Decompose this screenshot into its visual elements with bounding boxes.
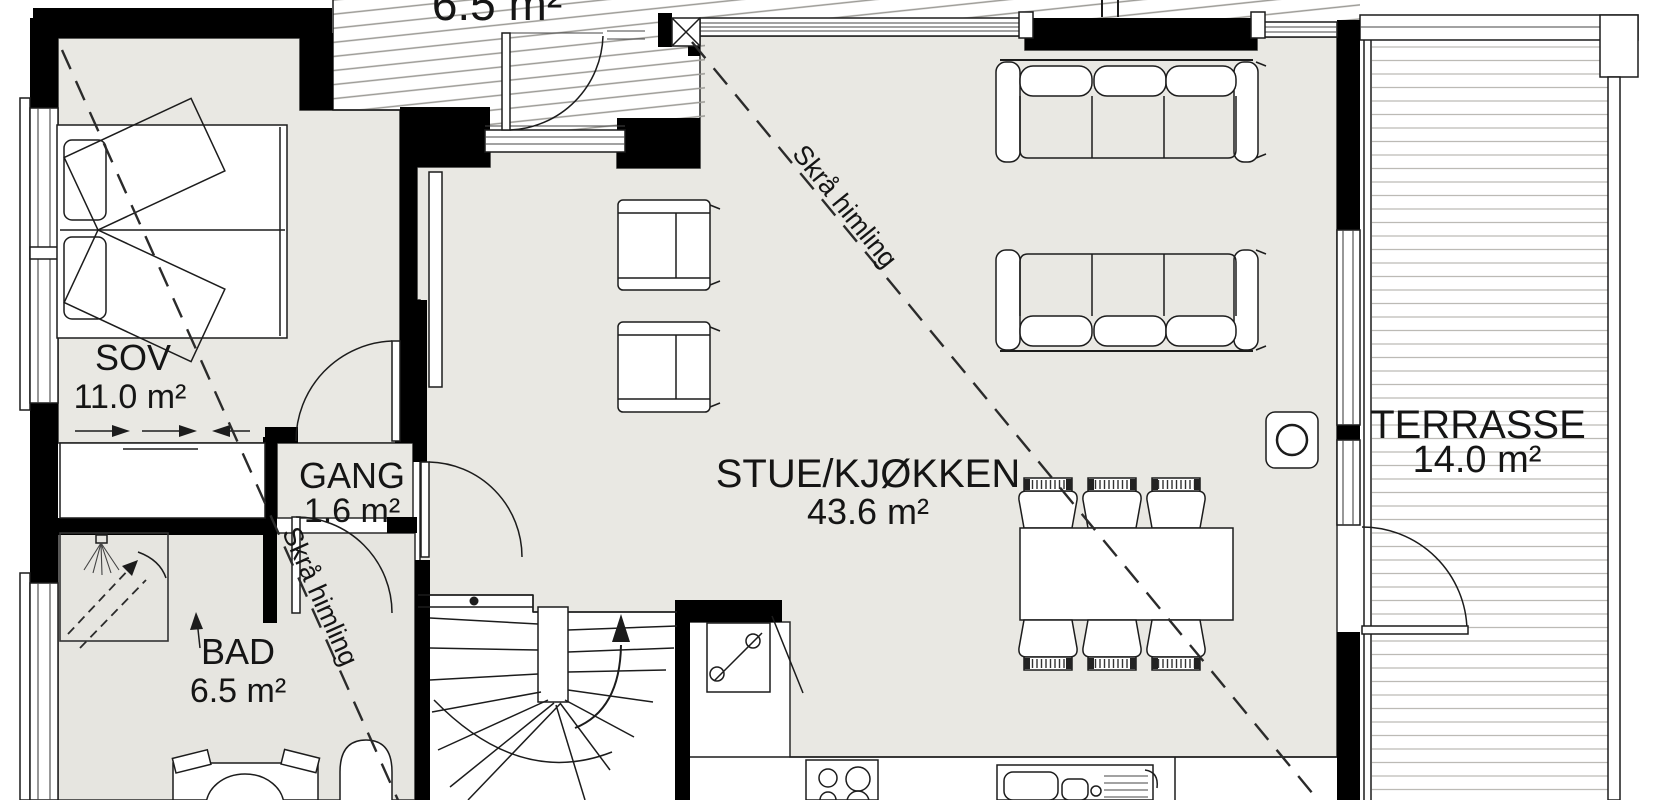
winder-staircase-icon — [418, 595, 677, 800]
room-label-gang: GANG — [299, 455, 405, 496]
terrace-corner-post — [1600, 15, 1638, 77]
stair-newel — [538, 607, 568, 702]
wood-stove-icon — [1266, 412, 1318, 468]
wall-living-top — [1025, 18, 1257, 50]
east-sidelight-window — [1337, 440, 1360, 525]
pillow-icon — [64, 237, 106, 319]
dining-chair-icon — [1083, 478, 1141, 528]
room-label-sov: SOV — [95, 337, 171, 378]
wall-kitchen-stair — [675, 600, 690, 800]
terrace-right-rail — [1608, 77, 1620, 800]
east-window — [1337, 230, 1360, 425]
window-sill-left-bottom — [20, 573, 30, 800]
room-area-bad: 6.5 m² — [190, 672, 286, 710]
wall-hall-east — [413, 300, 427, 462]
newel-cap-icon — [470, 597, 479, 606]
wall-end-cap-right — [1251, 12, 1265, 38]
room-label-stue: STUE/KJØKKEN — [716, 452, 1021, 496]
porch-column — [672, 18, 700, 46]
pillow-icon — [64, 140, 106, 220]
bedroom-window — [30, 108, 58, 403]
kitchen-sink-icon — [997, 765, 1157, 800]
floorplan-drawing: 6.5 m² SOV 11.0 m² GANG 1.6 m² BAD 6.5 m… — [0, 0, 1670, 800]
wall-bedroom-top — [33, 8, 332, 38]
wall-east-bottom — [1337, 632, 1360, 800]
armchair-icon — [618, 322, 720, 412]
wall-stair-west — [415, 560, 430, 800]
wall-east-nub — [1337, 425, 1360, 440]
bathroom-window — [30, 583, 58, 800]
dining-chair-icon — [1147, 478, 1205, 528]
window-sill-left-top — [20, 98, 30, 410]
dining-chair-icon — [1083, 620, 1141, 670]
wall-left-mid — [30, 403, 58, 583]
kitchen-appliance-icon — [707, 623, 770, 692]
kitchen-counter-black — [677, 600, 782, 622]
partial-top-label: 6.5 m² — [432, 0, 562, 30]
room-area-sov: 11.0 m² — [74, 378, 187, 416]
dining-chair-icon — [1019, 478, 1077, 528]
living-glass-band-right — [1257, 22, 1337, 37]
sliding-panel — [429, 172, 442, 387]
room-label-bad: BAD — [201, 631, 275, 672]
wall-end-cap-left — [1019, 12, 1033, 38]
floorplan-page: 6.5 m² SOV 11.0 m² GANG 1.6 m² BAD 6.5 m… — [0, 0, 1670, 800]
cooktop-icon — [806, 760, 878, 800]
double-bed-icon — [57, 98, 287, 361]
dining-set — [1019, 478, 1233, 670]
armchair-icon — [618, 200, 720, 290]
living-glass-band-left — [700, 18, 1025, 36]
dining-chair-icon — [1019, 620, 1077, 670]
dining-table-icon — [1020, 528, 1233, 620]
wall-porch-stub — [300, 33, 333, 110]
room-area-terrasse: 14.0 m² — [1413, 439, 1542, 481]
wall-porch-post-a — [658, 13, 672, 47]
room-area-gang: 1.6 m² — [304, 492, 400, 530]
room-area-stue: 43.6 m² — [807, 491, 929, 532]
wall-east-top — [1337, 20, 1360, 230]
